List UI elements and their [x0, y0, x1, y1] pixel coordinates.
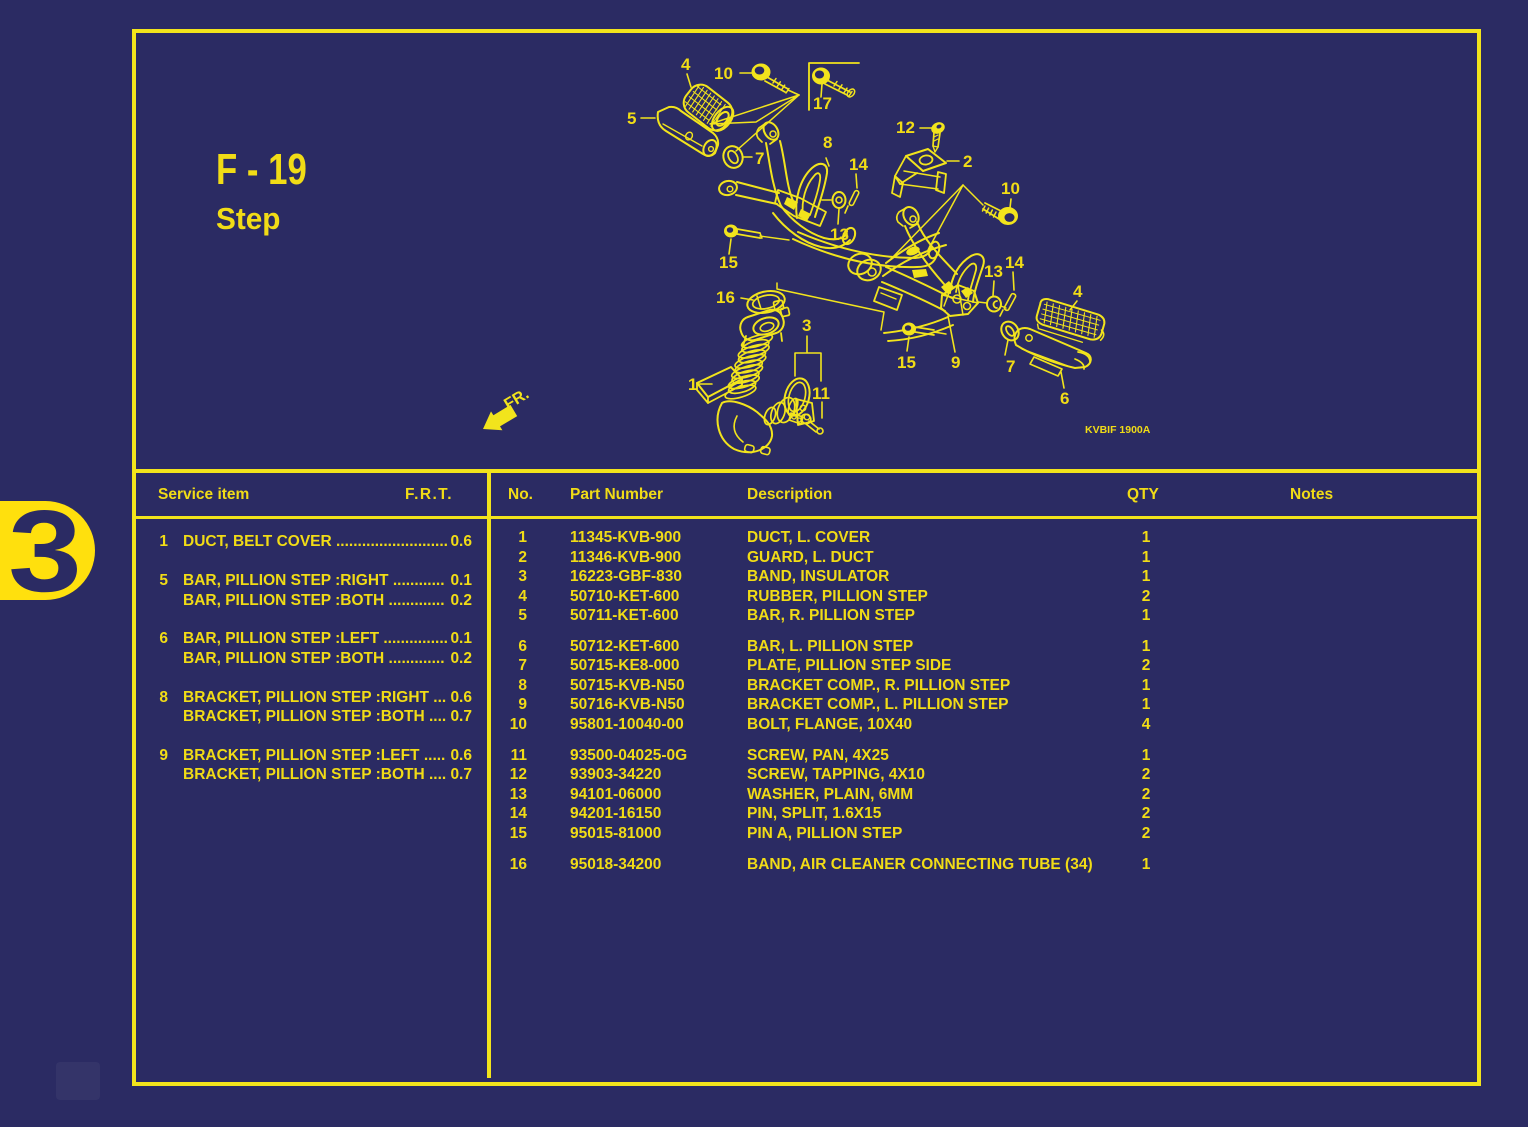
svg-text:8: 8	[823, 133, 832, 152]
svg-text:7: 7	[1006, 357, 1015, 376]
svg-text:2: 2	[963, 152, 972, 171]
svg-text:1: 1	[688, 375, 697, 394]
svg-text:15: 15	[897, 353, 916, 372]
svg-text:10: 10	[1001, 179, 1020, 198]
svg-text:14: 14	[849, 155, 868, 174]
svg-text:13: 13	[984, 262, 1003, 281]
svg-text:KVBIF 1900A: KVBIF 1900A	[1085, 424, 1151, 436]
svg-text:11: 11	[812, 384, 830, 403]
svg-text:7: 7	[755, 149, 764, 168]
svg-text:10: 10	[714, 64, 733, 83]
svg-text:15: 15	[719, 253, 738, 272]
svg-text:9: 9	[951, 353, 960, 372]
svg-text:16: 16	[716, 288, 735, 307]
svg-text:14: 14	[1005, 253, 1024, 272]
svg-text:4: 4	[1073, 282, 1083, 301]
svg-text:4: 4	[681, 55, 691, 74]
svg-text:12: 12	[896, 118, 915, 137]
svg-text:5: 5	[627, 109, 636, 128]
svg-text:17: 17	[813, 94, 832, 113]
svg-text:6: 6	[1060, 389, 1069, 408]
svg-text:3: 3	[802, 316, 811, 335]
svg-text:13: 13	[830, 225, 849, 244]
